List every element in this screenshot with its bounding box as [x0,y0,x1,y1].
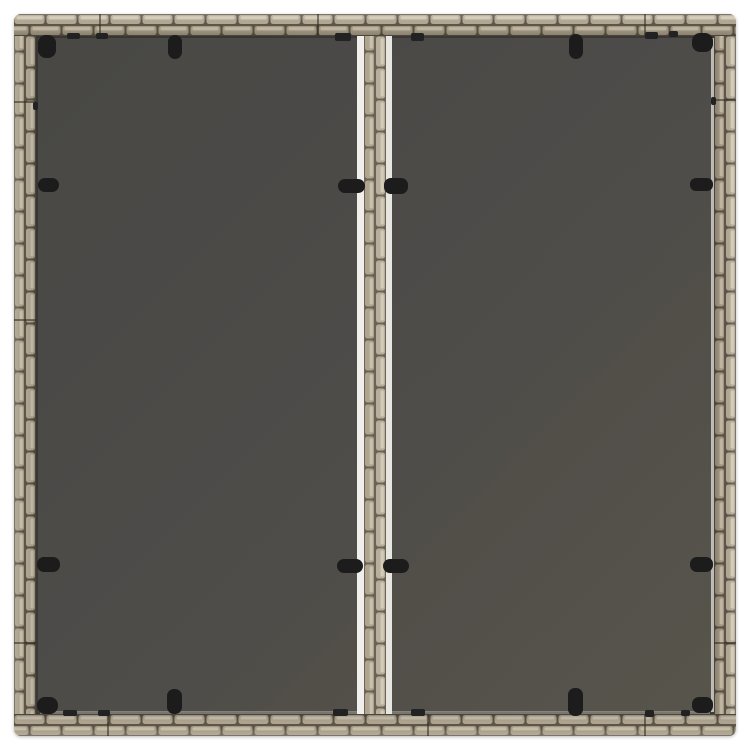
center-divider [357,36,392,714]
glass-clip-corner-top-right [692,33,713,52]
glass-clip-left-upper [38,178,59,192]
glass-clip-bottom-left-panel [167,689,182,714]
glass-clip-divider-lower-right [383,559,409,573]
glass-clip-right-upper [690,178,713,191]
edge-nub-9 [333,709,348,716]
edge-nub-14 [711,97,716,105]
frame-seam-left [14,642,36,644]
edge-nub-1 [67,33,80,39]
glass-clip-divider-upper-right [384,178,408,194]
glass-clip-top-left-panel [168,35,182,59]
edge-nub-10 [411,709,425,716]
divider-glass-edge-right [386,36,392,714]
garden-table-top-view: Top-down product photo of a square gray … [0,0,750,750]
frame-seam-bottom [107,714,109,736]
edge-nub-2 [96,33,108,39]
divider-weave-tint [364,36,386,714]
frame-seam-top [317,14,319,36]
edge-nub-6 [669,31,678,37]
frame-shading-right [714,36,736,714]
edge-nub-8 [98,710,110,716]
frame-shading-bottom [14,714,736,736]
edge-nub-4 [411,33,424,41]
glass-clip-divider-upper-left [338,179,365,193]
frame-seam-bottom [427,714,429,736]
edge-nub-13 [33,102,38,110]
glass-clip-corner-top-left [38,35,56,58]
glass-clip-top-right-panel [569,34,583,59]
glass-clip-corner-bottom-right [692,697,713,713]
page: { "page": { "background_color": "#ffffff… [0,0,750,750]
edge-nub-7 [63,710,77,716]
glass-clip-divider-lower-left [337,559,363,573]
frame-seam-right [714,642,736,644]
frame-seam-left [14,319,36,321]
frame-seam-left [14,101,36,103]
product-photo: Top-down product photo of a square gray … [0,0,750,750]
frame-seam-top [99,14,101,36]
glass-clip-bottom-right-panel [568,688,583,716]
edge-nub-3 [335,33,351,41]
frame-shading-top [14,14,736,36]
table-top [14,14,736,736]
frame-seam-bottom [644,714,646,736]
edge-nub-5 [645,32,658,39]
edge-nub-11 [645,710,654,717]
edge-nub-12 [681,710,690,716]
glass-clip-right-lower [690,557,713,572]
divider-glass-edge-left [357,36,364,714]
frame-shading-left [14,36,36,714]
glass-edge-highlight-right [711,38,714,712]
glass-clip-left-lower [37,557,60,572]
glass-clip-corner-bottom-left [37,697,58,714]
frame-seam-right [714,99,736,101]
